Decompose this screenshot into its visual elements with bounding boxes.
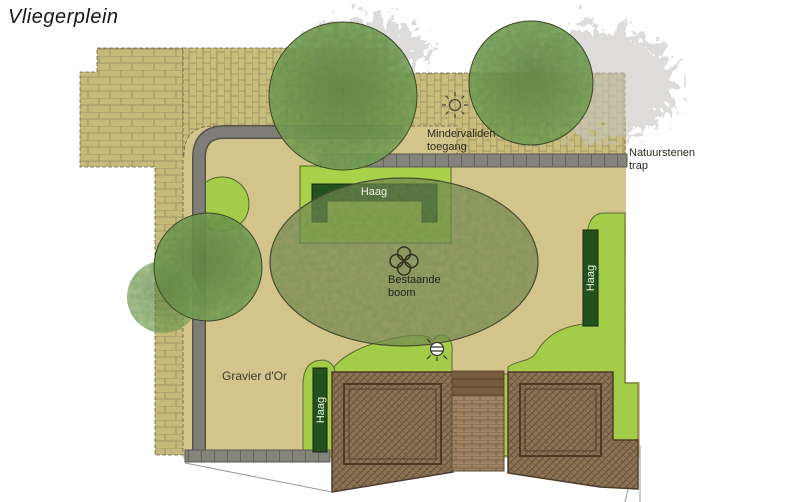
label-gravel: Gravier d'Or	[222, 370, 287, 383]
label-existing-tree-line2: boom	[388, 287, 441, 300]
tree-top-center	[269, 22, 417, 170]
page-title: Vliegerplein	[8, 6, 119, 29]
label-disabled-access-line1: Mindervaliden	[427, 128, 495, 141]
deck-left	[332, 372, 453, 492]
label-existing-tree-line1: Bestaande	[388, 274, 441, 287]
label-hedge-left: Haag	[315, 397, 327, 423]
label-disabled-access: Mindervaliden toegang	[427, 128, 495, 154]
stone-steps-path	[452, 395, 504, 471]
label-existing-tree: Bestaande boom	[388, 274, 441, 300]
label-hedge-right: Haag	[585, 265, 597, 291]
garden-plan-canvas: Vliegerplein Mindervaliden toegang Natuu…	[0, 0, 791, 502]
label-stone-stairs: Natuurstenen trap	[629, 147, 695, 173]
label-hedge-top: Haag	[361, 186, 387, 198]
bottom-path-band	[185, 450, 330, 462]
wood-decks	[332, 371, 638, 492]
label-disabled-access-line2: toegang	[427, 141, 495, 154]
label-stone-stairs-line1: Natuurstenen	[629, 147, 695, 160]
tree-top-right	[469, 21, 593, 145]
stair-planks	[452, 371, 504, 395]
label-stone-stairs-line2: trap	[629, 160, 695, 173]
garden-plan-drawing	[0, 0, 791, 502]
